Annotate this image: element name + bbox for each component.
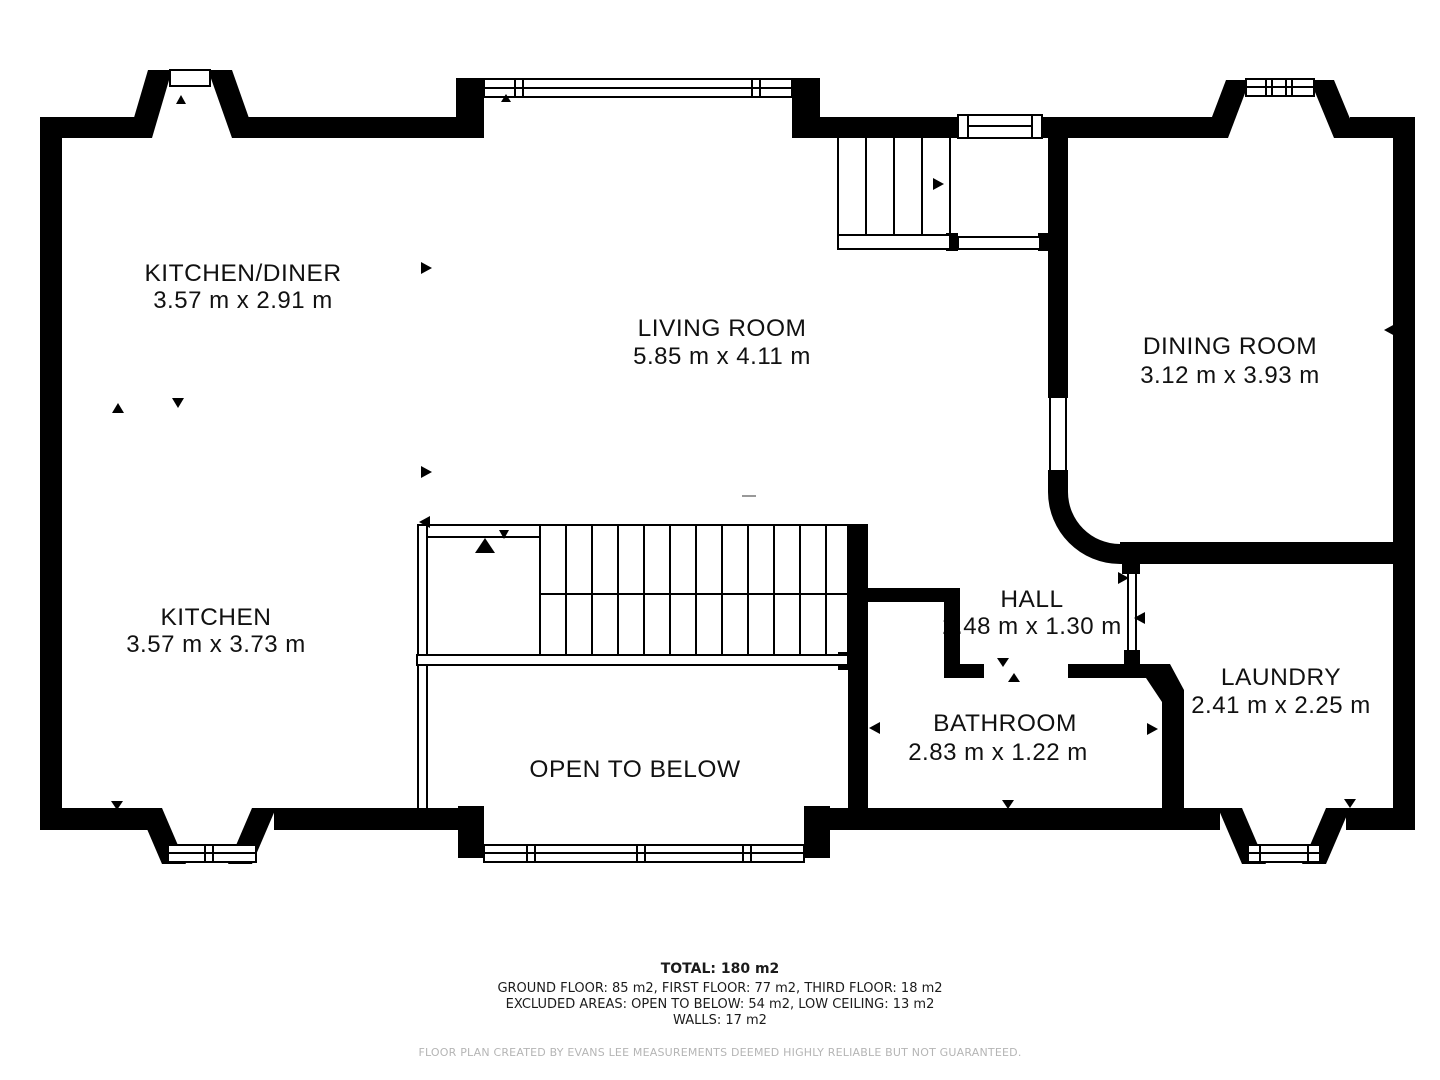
kitchen-dims: 3.57 m x 3.73 m xyxy=(126,631,306,658)
direction-arrow xyxy=(176,95,186,104)
room-label-living-room: LIVING ROOM 5.85 m x 4.11 m xyxy=(633,315,811,370)
hall-name: HALL xyxy=(1000,586,1063,613)
room-label-bathroom: BATHROOM 2.83 m x 1.22 m xyxy=(908,710,1088,766)
direction-arrow xyxy=(1002,800,1014,809)
direction-arrow xyxy=(869,722,880,734)
kitchen-name: KITCHEN xyxy=(160,604,271,631)
direction-arrow xyxy=(933,178,944,190)
living-room-name: LIVING ROOM xyxy=(638,315,807,342)
stairs-upper xyxy=(838,138,950,249)
direction-arrow xyxy=(112,403,124,413)
floor-areas: GROUND FLOOR: 85 m2, FIRST FLOOR: 77 m2,… xyxy=(0,981,1440,997)
direction-arrow xyxy=(1008,673,1020,682)
room-label-kitchen: KITCHEN 3.57 m x 3.73 m xyxy=(126,604,306,658)
bathroom-name: BATHROOM xyxy=(933,710,1077,737)
open-to-below-label: OPEN TO BELOW xyxy=(529,756,741,783)
room-label-laundry: LAUNDRY 2.41 m x 2.25 m xyxy=(1191,664,1371,719)
living-room-bay-window xyxy=(484,79,792,97)
disclaimer: FLOOR PLAN CREATED BY EVANS LEE MEASUREM… xyxy=(0,1046,1440,1059)
laundry-name: LAUNDRY xyxy=(1221,664,1341,691)
floorplan-page: KITCHEN/DINER 3.57 m x 2.91 m LIVING ROO… xyxy=(0,0,1440,1080)
dining-room-name: DINING ROOM xyxy=(1143,333,1317,360)
kitchen-diner-dims: 3.57 m x 2.91 m xyxy=(153,287,333,314)
kitchen-bay-window xyxy=(168,845,256,862)
dining-room-dims: 3.12 m x 3.93 m xyxy=(1140,362,1320,389)
walls xyxy=(40,70,1415,864)
excluded-areas: EXCLUDED AREAS: OPEN TO BELOW: 54 m2, LO… xyxy=(0,997,1440,1013)
living-room-dims: 5.85 m x 4.11 m xyxy=(633,343,811,370)
kitchen-diner-name: KITCHEN/DINER xyxy=(144,260,341,287)
walls-area: WALLS: 17 m2 xyxy=(0,1013,1440,1029)
floorplan-drawing: KITCHEN/DINER 3.57 m x 2.91 m LIVING ROO… xyxy=(0,0,1440,1080)
direction-arrow xyxy=(1344,799,1356,808)
laundry-bay-window xyxy=(1248,845,1320,862)
dormer-window xyxy=(170,70,210,86)
direction-arrow xyxy=(997,658,1009,667)
top-wall-window xyxy=(958,115,1042,138)
dining-room-bay-window xyxy=(1246,79,1314,96)
direction-arrow xyxy=(1147,723,1158,735)
direction-arrow xyxy=(1384,324,1395,336)
direction-arrow xyxy=(419,516,430,528)
room-label-hall: HALL 2.48 m x 1.30 m xyxy=(942,586,1122,640)
room-label-kitchen-diner: KITCHEN/DINER 3.57 m x 2.91 m xyxy=(144,260,341,314)
open-to-below-edge xyxy=(417,655,848,665)
open-to-below-window xyxy=(484,845,804,862)
direction-arrow xyxy=(172,398,184,408)
room-labels: KITCHEN/DINER 3.57 m x 2.91 m LIVING ROO… xyxy=(126,260,1371,783)
hall-dims: 2.48 m x 1.30 m xyxy=(942,613,1122,640)
total-area: TOTAL: 180 m2 xyxy=(0,961,1440,977)
upper-landing-edge xyxy=(958,237,1040,249)
direction-arrow xyxy=(421,262,432,274)
laundry-dims: 2.41 m x 2.25 m xyxy=(1191,692,1371,719)
windows xyxy=(168,70,1320,862)
direction-arrow xyxy=(475,538,495,553)
direction-arrow xyxy=(421,466,432,478)
room-label-dining-room: DINING ROOM 3.12 m x 3.93 m xyxy=(1140,333,1320,389)
bathroom-dims: 2.83 m x 1.22 m xyxy=(908,739,1088,766)
area-summary: TOTAL: 180 m2 GROUND FLOOR: 85 m2, FIRST… xyxy=(0,961,1440,1059)
